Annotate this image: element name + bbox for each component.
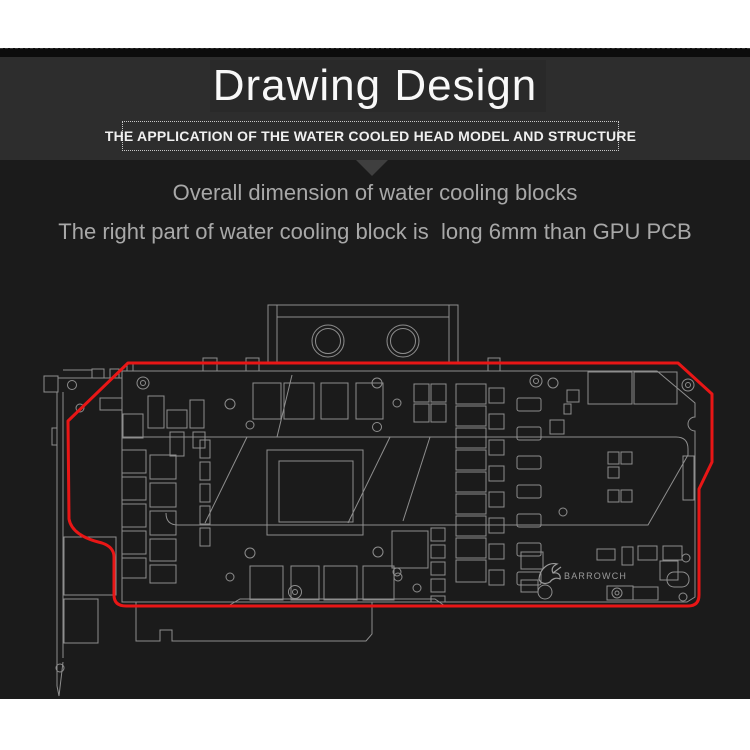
screw-hole-circle bbox=[530, 375, 542, 387]
component-rect bbox=[489, 466, 504, 481]
screw-hole-circle bbox=[246, 421, 254, 429]
pcb-outline-path bbox=[122, 371, 695, 602]
component-rect bbox=[456, 428, 486, 448]
component-rect bbox=[170, 432, 184, 456]
component-rect bbox=[150, 565, 176, 583]
component-rect bbox=[634, 372, 677, 404]
screw-hole-circle bbox=[559, 508, 567, 516]
component-rect bbox=[489, 492, 504, 507]
component-rect bbox=[521, 580, 538, 592]
component-rect bbox=[489, 570, 504, 585]
component-rect bbox=[148, 396, 164, 428]
screw-hole-circle bbox=[387, 325, 419, 357]
component-rect bbox=[638, 546, 657, 560]
component-rect bbox=[622, 547, 633, 565]
component-rect bbox=[608, 467, 619, 478]
component-rect bbox=[489, 544, 504, 559]
pcb-outline-path bbox=[57, 662, 63, 696]
screw-hole-circle bbox=[393, 399, 401, 407]
component-rect bbox=[64, 599, 98, 643]
screw-hole-circle bbox=[534, 379, 539, 384]
component-rect bbox=[456, 384, 486, 404]
component-rect bbox=[190, 400, 204, 428]
component-rect bbox=[456, 516, 486, 536]
component-rect bbox=[431, 384, 446, 402]
component-rect bbox=[621, 490, 632, 502]
component-rect bbox=[456, 494, 486, 514]
screw-hole-circle bbox=[141, 381, 146, 386]
screw-hole-circle bbox=[68, 381, 77, 390]
component-rect bbox=[122, 558, 146, 578]
screw-hole-circle bbox=[682, 379, 694, 391]
component-rect bbox=[588, 372, 632, 404]
component-rect bbox=[660, 561, 678, 580]
component-rect bbox=[268, 305, 458, 363]
component-rect bbox=[44, 376, 58, 392]
component-rect bbox=[633, 587, 658, 600]
component-rect bbox=[100, 398, 122, 410]
barrowch-logo-icon bbox=[539, 564, 561, 584]
component-rect bbox=[517, 485, 541, 498]
screw-hole-circle bbox=[293, 590, 298, 595]
screw-hole-circle bbox=[373, 423, 382, 432]
component-rect bbox=[489, 440, 504, 455]
screw-hole-circle bbox=[548, 378, 558, 388]
component-rect bbox=[567, 390, 579, 402]
screw-hole-circle bbox=[391, 329, 416, 354]
screw-hole-circle bbox=[289, 586, 302, 599]
component-rect bbox=[597, 549, 615, 560]
component-rect bbox=[392, 531, 428, 568]
component-rect bbox=[122, 450, 146, 473]
component-rect bbox=[517, 456, 541, 469]
component-rect bbox=[200, 528, 210, 546]
component-rect bbox=[92, 369, 104, 378]
component-rect bbox=[122, 531, 146, 554]
barrowch-logo-text: BARROWCH bbox=[564, 571, 627, 581]
component-rect bbox=[431, 579, 445, 592]
component-rect bbox=[607, 586, 633, 600]
component-rect bbox=[122, 477, 146, 500]
screw-hole-circle bbox=[316, 329, 341, 354]
component-rect bbox=[456, 560, 486, 582]
page: Drawing Design THE APPLICATION OF THE WA… bbox=[0, 0, 750, 750]
component-rect bbox=[489, 414, 504, 429]
screw-hole-circle bbox=[245, 548, 255, 558]
component-rect bbox=[683, 456, 694, 500]
pcb-outline-path bbox=[136, 602, 372, 641]
component-rect bbox=[356, 383, 383, 419]
screw-hole-circle bbox=[373, 547, 383, 557]
component-rect bbox=[564, 404, 571, 414]
screw-hole-circle bbox=[538, 585, 552, 599]
component-rect bbox=[150, 511, 176, 535]
screw-hole-circle bbox=[312, 325, 344, 357]
component-rect bbox=[150, 455, 176, 479]
component-rect bbox=[200, 462, 210, 480]
component-rect bbox=[431, 545, 445, 558]
component-rect bbox=[456, 472, 486, 492]
screw-hole-circle bbox=[612, 588, 622, 598]
technical-drawing: BARROWCH bbox=[0, 0, 750, 750]
component-rect bbox=[122, 504, 146, 527]
screw-hole-circle bbox=[679, 593, 687, 601]
pcb-line bbox=[205, 437, 247, 523]
component-rect bbox=[431, 562, 445, 575]
component-rect bbox=[321, 383, 348, 419]
component-rect bbox=[52, 428, 57, 445]
component-rect bbox=[324, 566, 357, 600]
component-rect bbox=[250, 566, 283, 600]
component-rect bbox=[150, 483, 176, 507]
component-rect bbox=[456, 538, 486, 558]
screw-hole-circle bbox=[226, 573, 234, 581]
component-rect bbox=[456, 406, 486, 426]
component-rect bbox=[663, 546, 682, 560]
component-rect bbox=[608, 452, 619, 464]
component-rect bbox=[431, 404, 446, 422]
component-rect bbox=[279, 461, 353, 522]
component-rect bbox=[517, 398, 541, 411]
screw-hole-circle bbox=[413, 584, 421, 592]
component-rect bbox=[517, 427, 541, 440]
component-rect bbox=[200, 484, 210, 502]
component-rect bbox=[167, 410, 187, 428]
component-rect bbox=[414, 384, 429, 402]
component-rect bbox=[621, 452, 632, 464]
component-rect bbox=[123, 414, 143, 438]
pcb-line bbox=[403, 437, 430, 521]
component-rect bbox=[521, 552, 543, 569]
component-rect bbox=[363, 566, 394, 600]
screw-hole-circle bbox=[225, 399, 235, 409]
screw-hole-circle bbox=[682, 554, 690, 562]
component-rect bbox=[456, 450, 486, 470]
water-block-red-outline bbox=[68, 363, 712, 606]
pcb-outline-path bbox=[122, 437, 688, 525]
component-rect bbox=[489, 388, 504, 403]
screw-hole-circle bbox=[615, 591, 619, 595]
screw-hole-circle bbox=[686, 383, 691, 388]
component-rect bbox=[253, 383, 281, 419]
component-rect bbox=[150, 539, 176, 561]
component-rect bbox=[414, 404, 429, 422]
component-rect bbox=[608, 490, 619, 502]
component-rect bbox=[550, 420, 564, 434]
screw-hole-circle bbox=[137, 377, 149, 389]
component-rect bbox=[431, 528, 445, 541]
